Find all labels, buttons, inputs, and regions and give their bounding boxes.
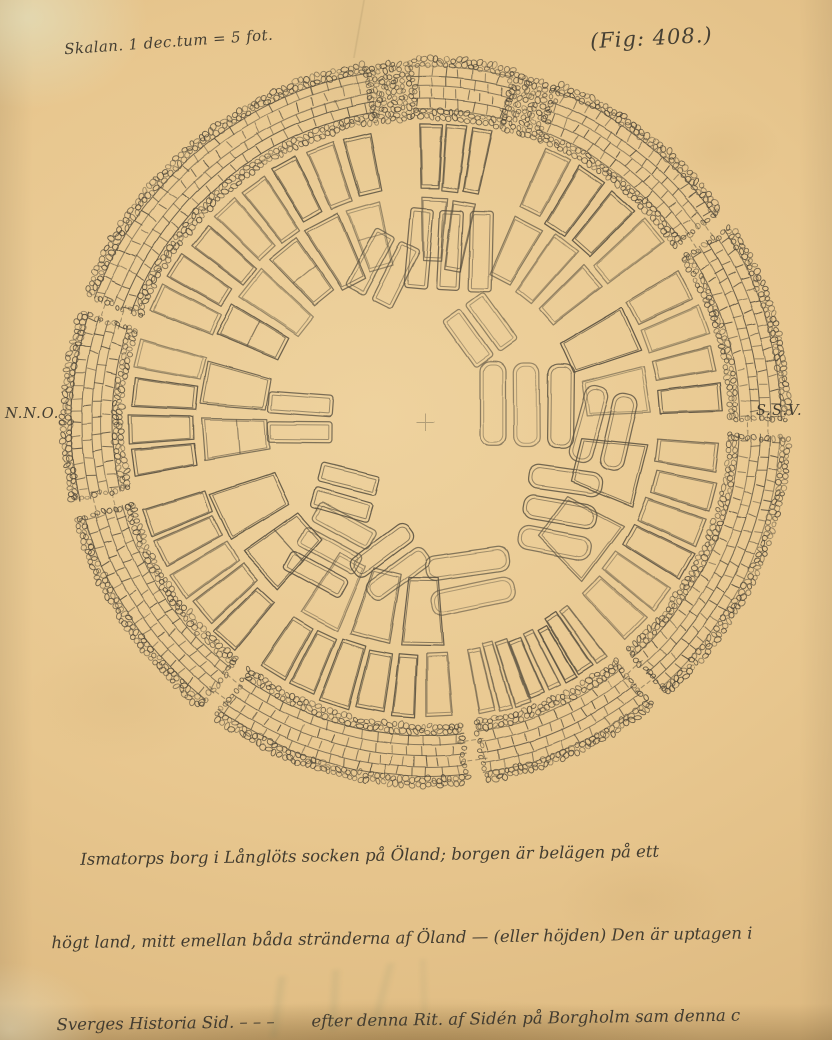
paper-sheet: Skalan. 1 dec.tum = 5 fot. (Fig: 408.) N… xyxy=(0,0,832,1040)
caption-line: Sverges Historia Sid. – – – efter denna … xyxy=(56,1001,808,1039)
caption-line: Ismatorps borg i Långlöts socken på Ölan… xyxy=(80,836,806,874)
compass-label-ssv: S.S.V. xyxy=(756,403,803,419)
house-foundations xyxy=(129,124,723,718)
caption: Ismatorps borg i Långlöts socken på Ölan… xyxy=(49,781,810,1040)
compass-label-nno: N.N.O. xyxy=(5,406,59,422)
caption-line: högt land, mitt emellan båda stränderna … xyxy=(51,918,807,956)
